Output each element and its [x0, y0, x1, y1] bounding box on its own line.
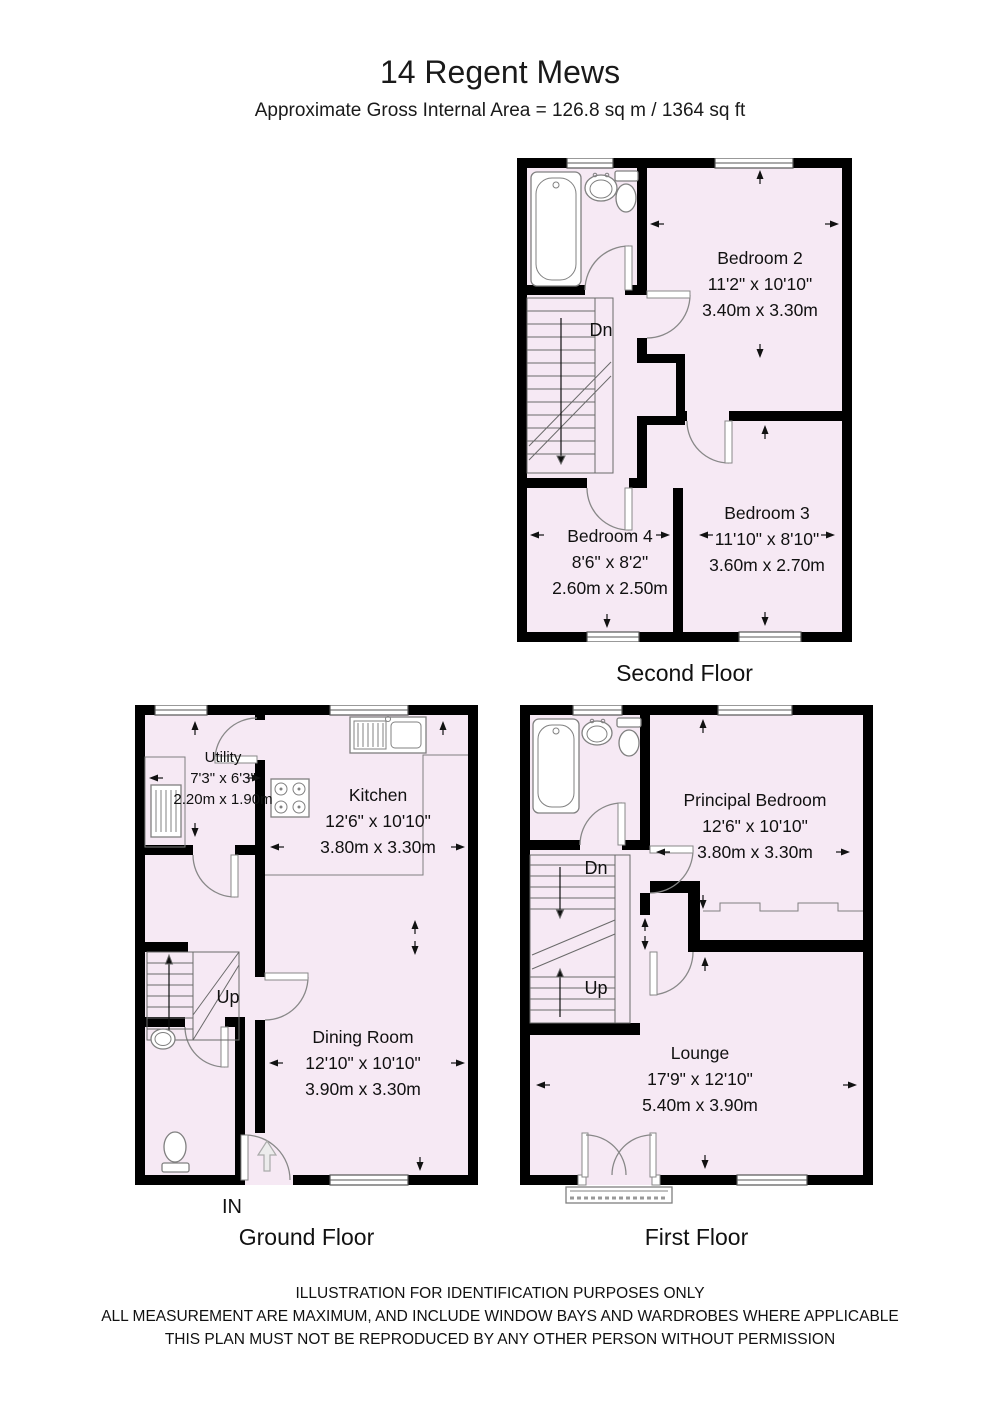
bedroom4-imperial: 8'6" x 8'2" [572, 552, 649, 572]
principal-bedroom-imperial: 12'6" x 10'10" [702, 816, 808, 836]
bedroom2-metric: 3.40m x 3.30m [702, 300, 818, 320]
kitchen-imperial: 12'6" x 10'10" [325, 811, 431, 831]
first-floor-toilet-icon [617, 718, 641, 756]
ground-floor-stairs-label: Up [216, 987, 239, 1007]
dining-imperial: 12'10" x 10'10" [305, 1053, 420, 1073]
lounge-imperial: 17'9" x 12'10" [647, 1069, 753, 1089]
disclaimer-line2: ALL MEASUREMENT ARE MAXIMUM, AND INCLUDE… [0, 1305, 1000, 1328]
utility-metric: 2.20m x 1.90m [173, 791, 272, 808]
principal-bedroom-metric: 3.80m x 3.30m [697, 842, 813, 862]
kitchen-metric: 3.80m x 3.30m [320, 837, 436, 857]
utility-name: Utility [205, 749, 242, 766]
first-floor-stairs-up-label: Up [584, 978, 607, 998]
principal-bedroom-name: Principal Bedroom [684, 790, 827, 810]
bedroom3-metric: 3.60m x 2.70m [709, 555, 825, 575]
second-floor-plan: Dn Bedroom 2 11'2" x 10'10" 3.40m x 3.30… [517, 158, 852, 642]
kitchen-name: Kitchen [349, 785, 407, 805]
utility-imperial: 7'3" x 6'3" [190, 770, 256, 787]
bedroom3-imperial: 11'10" x 8'10" [715, 529, 819, 549]
wc-sink-icon [151, 1029, 175, 1049]
first-floor-bath-icon [533, 719, 579, 813]
disclaimer: ILLUSTRATION FOR IDENTIFICATION PURPOSES… [0, 1282, 1000, 1351]
second-floor-bath-icon [531, 172, 581, 286]
second-floor-label: Second Floor [517, 660, 852, 687]
first-floor-stairs-down-label: Dn [584, 858, 607, 878]
disclaimer-line3: THIS PLAN MUST NOT BE REPRODUCED BY ANY … [0, 1328, 1000, 1351]
floorplan-page: 14 Regent Mews Approximate Gross Interna… [0, 0, 1000, 1415]
page-title: 14 Regent Mews [0, 54, 1000, 91]
dining-metric: 3.90m x 3.30m [305, 1079, 421, 1099]
bedroom4-metric: 2.60m x 2.50m [552, 578, 668, 598]
kitchen-sink-icon [350, 717, 426, 754]
first-floor-label: First Floor [520, 1224, 873, 1251]
hob-icon [271, 779, 309, 817]
bedroom4-name: Bedroom 4 [567, 526, 653, 546]
first-floor-plan: Principal Bedroom 12'6" x 10'10" 3.80m x… [520, 705, 873, 1210]
bedroom2-imperial: 11'2" x 10'10" [708, 274, 812, 294]
entrance-label: IN [222, 1196, 242, 1218]
ground-floor-label: Ground Floor [135, 1224, 478, 1251]
balcony [566, 1187, 672, 1203]
bedroom3-name: Bedroom 3 [724, 503, 810, 523]
dining-name: Dining Room [312, 1027, 413, 1047]
lounge-metric: 5.40m x 3.90m [642, 1095, 758, 1115]
disclaimer-line1: ILLUSTRATION FOR IDENTIFICATION PURPOSES… [0, 1282, 1000, 1305]
bedroom2-name: Bedroom 2 [717, 248, 803, 268]
lounge-name: Lounge [671, 1043, 729, 1063]
ground-floor-plan: Utility 7'3" x 6'3" 2.20m x 1.90m Kitche… [135, 705, 478, 1220]
second-floor-toilet-icon [615, 171, 638, 212]
page-subtitle: Approximate Gross Internal Area = 126.8 … [0, 100, 1000, 122]
second-floor-stairs-label: Dn [589, 320, 612, 340]
